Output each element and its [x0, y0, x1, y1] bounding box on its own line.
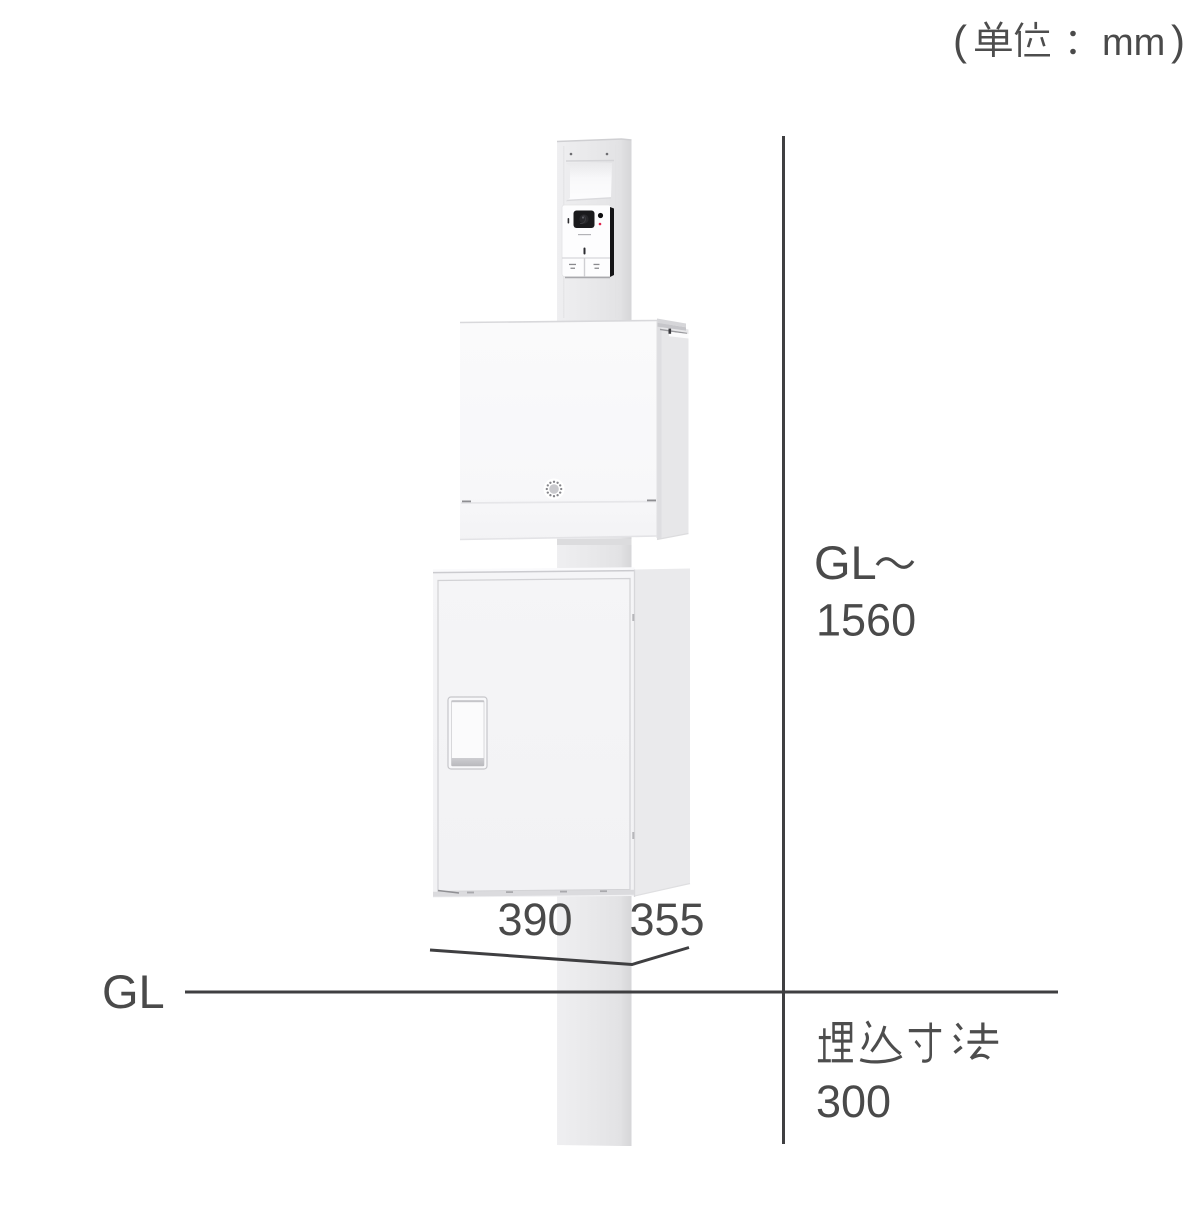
svg-text:mm: mm [1102, 22, 1165, 64]
svg-text:GL: GL [102, 965, 165, 1018]
svg-text:GL: GL [814, 536, 877, 589]
svg-text:): ) [1171, 17, 1185, 64]
svg-text:390: 390 [497, 894, 572, 945]
svg-text:355: 355 [629, 894, 704, 945]
svg-text:1560: 1560 [816, 595, 916, 646]
svg-text:300: 300 [816, 1076, 891, 1127]
svg-text:(: ( [953, 17, 967, 64]
